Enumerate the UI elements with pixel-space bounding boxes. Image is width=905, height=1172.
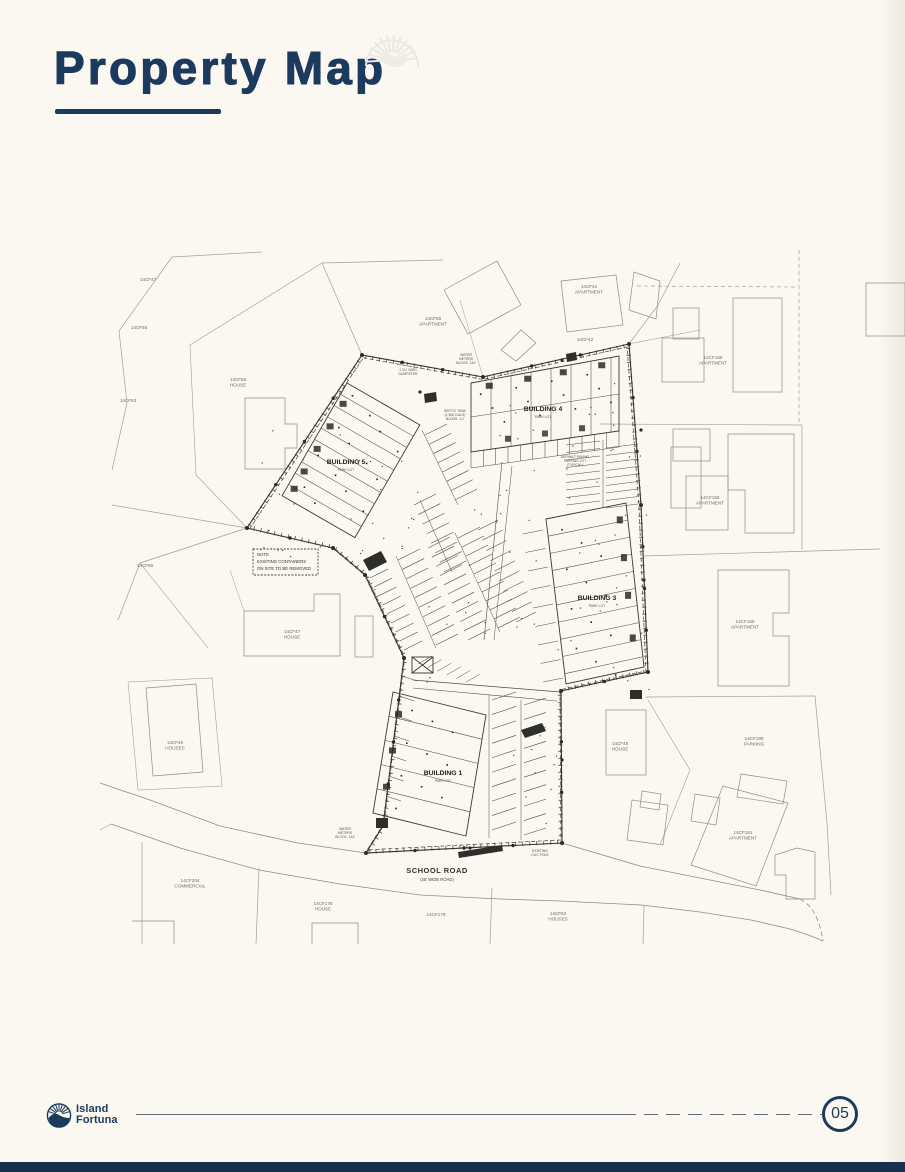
svg-text:ON SITE TO BE REMOVED: ON SITE TO BE REMOVED (257, 566, 311, 571)
svg-text:PARKING: PARKING (744, 742, 765, 747)
svg-text:14CF158: 14CF158 (704, 355, 723, 360)
svg-text:APARTMENT: APARTMENT (696, 501, 724, 506)
svg-text:BUILDING 4: BUILDING 4 (524, 406, 563, 413)
svg-text:14CF63: 14CF63 (550, 911, 567, 916)
svg-text:CUC POLE: CUC POLE (531, 853, 549, 857)
svg-text:14CF45: 14CF45 (612, 741, 629, 746)
svg-text:14CF160: 14CF160 (736, 619, 755, 624)
svg-text:14CF204: 14CF204 (181, 878, 200, 883)
svg-text:14CF178: 14CF178 (314, 901, 333, 906)
svg-text:14CF46: 14CF46 (167, 740, 184, 745)
svg-text:14CF47: 14CF47 (140, 277, 157, 282)
svg-text:DUMPSTER: DUMPSTER (398, 372, 418, 376)
svg-text:HOUSE: HOUSE (230, 383, 246, 388)
svg-text:(TYPICAL): (TYPICAL) (567, 463, 583, 467)
svg-text:14CF66: 14CF66 (137, 563, 154, 568)
svg-text:14CF41: 14CF41 (581, 284, 598, 289)
svg-text:14CF179: 14CF179 (427, 912, 446, 917)
svg-text:HOUSE: HOUSE (284, 635, 300, 640)
svg-text:14CF47: 14CF47 (284, 629, 301, 634)
svg-text:14CF159: 14CF159 (701, 495, 720, 500)
svg-text:EXISTING CONTAINERS: EXISTING CONTAINERS (257, 559, 306, 564)
svg-text:BUILDING 3: BUILDING 3 (578, 595, 617, 602)
svg-text:BLDGS. 1,2: BLDGS. 1,2 (446, 417, 464, 421)
svg-text:14CF53: 14CF53 (120, 398, 137, 403)
svg-text:BUILDING 1: BUILDING 1 (424, 770, 463, 777)
svg-text:NOTE: NOTE (257, 552, 269, 557)
svg-text:14CF58: 14CF58 (425, 316, 442, 321)
svg-text:14CF189: 14CF189 (745, 736, 764, 741)
svg-text:PARK LOT: PARK LOT (435, 779, 452, 783)
svg-text:SCHOOL ROAD: SCHOOL ROAD (406, 866, 468, 875)
svg-text:BLDGS. 1&2: BLDGS. 1&2 (456, 361, 476, 365)
svg-text:14CF42: 14CF42 (577, 337, 594, 342)
svg-text:14CF56: 14CF56 (131, 325, 148, 330)
svg-text:(26' WIDE ROAD): (26' WIDE ROAD) (420, 877, 454, 882)
svg-text:HOUSES: HOUSES (165, 746, 184, 751)
svg-text:HOUSE: HOUSE (315, 907, 331, 912)
svg-text:HOUSE: HOUSE (612, 747, 628, 752)
svg-text:APARTMENT: APARTMENT (419, 322, 447, 327)
svg-text:APARTMENT: APARTMENT (731, 625, 759, 630)
svg-text:PARK LOT: PARK LOT (338, 468, 355, 472)
svg-text:APARTMENT: APARTMENT (575, 290, 603, 295)
svg-text:BUILDING 5: BUILDING 5 (327, 459, 366, 466)
svg-text:APARTMENT: APARTMENT (699, 361, 727, 366)
svg-text:14CF181: 14CF181 (734, 830, 753, 835)
svg-text:COMMERCIAL: COMMERCIAL (174, 884, 206, 889)
svg-text:APARTMENT: APARTMENT (729, 836, 757, 841)
svg-text:14CF55: 14CF55 (230, 377, 247, 382)
svg-text:BLOCK. 1&2: BLOCK. 1&2 (335, 835, 355, 839)
svg-text:HOUSES: HOUSES (548, 917, 567, 922)
svg-text:PARK LOT: PARK LOT (589, 604, 606, 608)
svg-text:PARK LOT: PARK LOT (535, 415, 552, 419)
